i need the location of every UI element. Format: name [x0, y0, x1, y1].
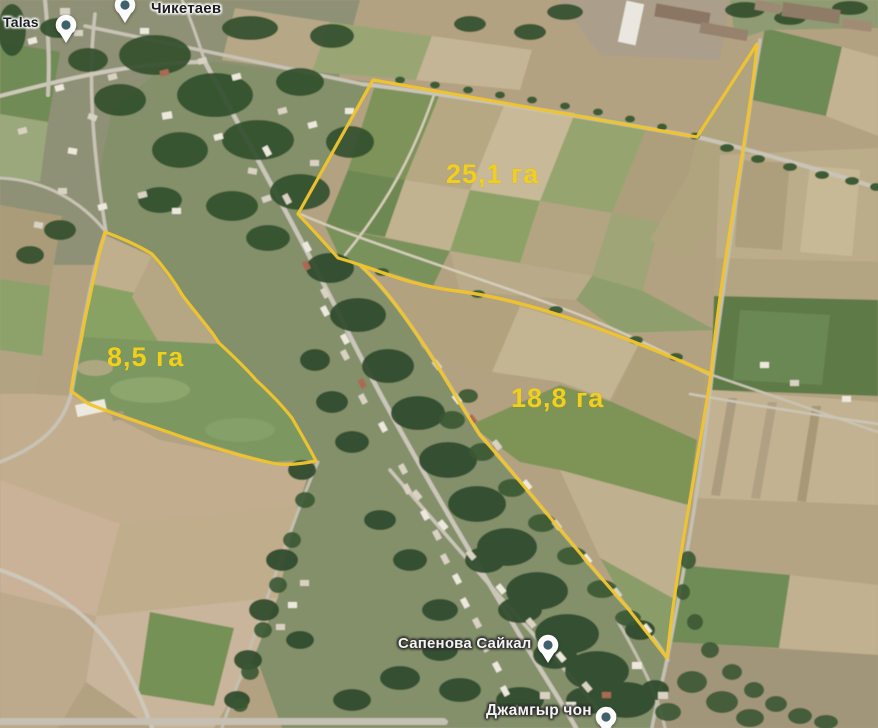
- map-pin-talas-icon[interactable]: [54, 14, 78, 44]
- parcel-area-label-18-8: 18,8 га: [511, 383, 604, 414]
- parcel-area-label-8-5: 8,5 га: [107, 342, 184, 373]
- place-label-dzhamgyr-chon[interactable]: Джамгыр чон: [486, 703, 592, 719]
- map-pin-dzhamgyr-chon-icon[interactable]: [594, 706, 618, 728]
- map-pin-sapenova-saikal-icon[interactable]: [536, 634, 560, 664]
- satellite-map-view[interactable]: 25,1 га 8,5 га 18,8 га Talas Чикетаев Са…: [0, 0, 878, 728]
- parcel-area-label-25-1: 25,1 га: [446, 159, 539, 190]
- place-label-sapenova-saikal[interactable]: Сапенова Сайкал: [398, 636, 531, 651]
- map-pin-chiketaev-icon[interactable]: [113, 0, 137, 24]
- place-label-chiketaev[interactable]: Чикетаев: [151, 1, 221, 16]
- place-label-talas[interactable]: Talas: [3, 15, 39, 29]
